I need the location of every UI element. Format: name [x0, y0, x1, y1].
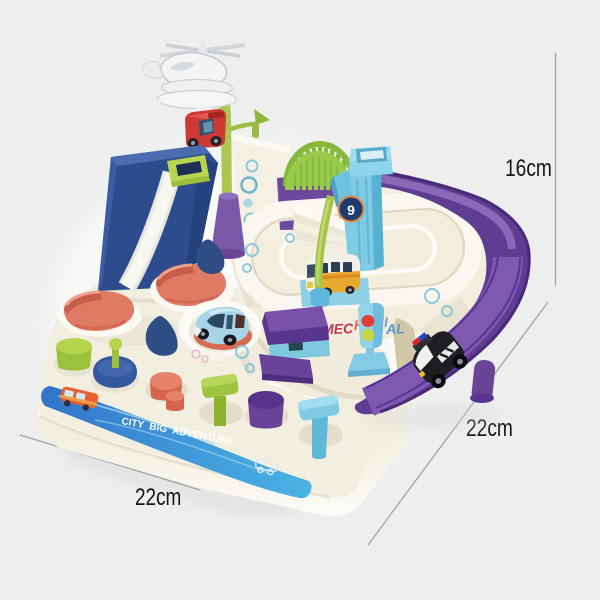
svg-text:16cm: 16cm: [505, 154, 552, 182]
svg-text:9: 9: [347, 202, 355, 218]
svg-text:22cm: 22cm: [135, 483, 181, 511]
svg-text:AL: AL: [385, 320, 405, 337]
